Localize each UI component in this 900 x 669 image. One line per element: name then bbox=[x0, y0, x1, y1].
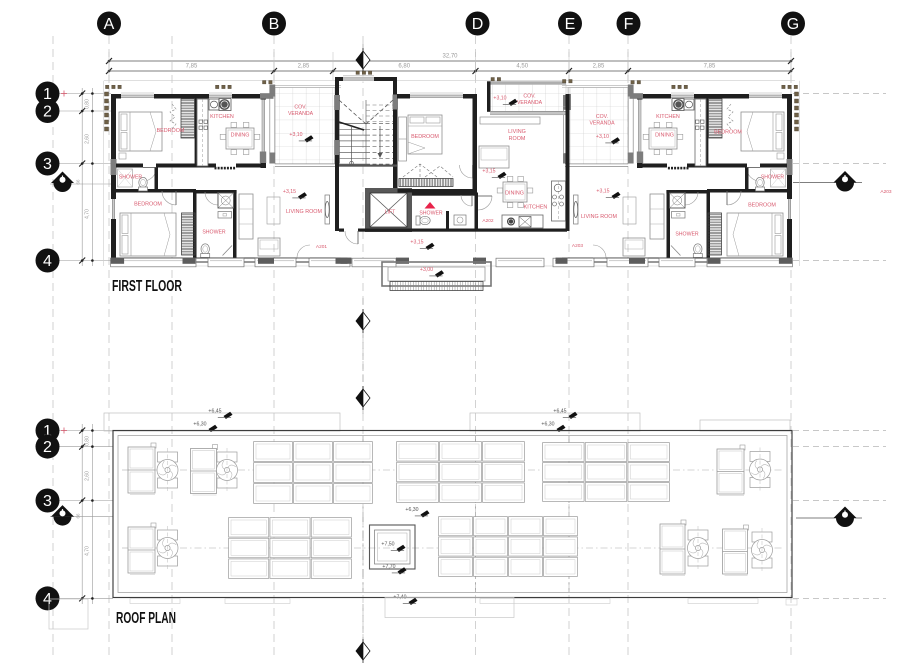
svg-text:+3,10: +3,10 bbox=[493, 96, 506, 102]
svg-text:VERANDA: VERANDA bbox=[288, 111, 314, 117]
svg-text:BEDROOM: BEDROOM bbox=[134, 202, 162, 208]
svg-text:A201: A201 bbox=[316, 244, 328, 250]
svg-text:A203: A203 bbox=[880, 189, 892, 195]
svg-text:G: G bbox=[787, 16, 799, 33]
svg-text:SHOWER: SHOWER bbox=[202, 230, 226, 236]
svg-text:2,85: 2,85 bbox=[298, 64, 310, 70]
svg-text:BEDROOM: BEDROOM bbox=[157, 128, 185, 134]
svg-text:4,70: 4,70 bbox=[84, 209, 90, 219]
svg-text:F: F bbox=[624, 16, 634, 33]
svg-text:+3,10: +3,10 bbox=[596, 134, 609, 140]
svg-text:66: 66 bbox=[75, 179, 80, 185]
svg-text:+6,30: +6,30 bbox=[193, 422, 206, 428]
svg-text:COV.: COV. bbox=[523, 94, 535, 100]
svg-text:SHOWER: SHOWER bbox=[419, 211, 443, 217]
svg-text:BEDROOM: BEDROOM bbox=[714, 130, 742, 136]
svg-text:0,80: 0,80 bbox=[84, 99, 90, 109]
svg-text:COV.: COV. bbox=[596, 114, 608, 120]
svg-text:DINING: DINING bbox=[655, 133, 674, 139]
svg-text:+3,10: +3,10 bbox=[289, 132, 302, 138]
svg-text:DINING: DINING bbox=[231, 133, 250, 139]
svg-text:SHOWER: SHOWER bbox=[675, 232, 699, 238]
svg-text:7,85: 7,85 bbox=[186, 64, 198, 70]
svg-text:4: 4 bbox=[43, 591, 52, 608]
svg-text:66: 66 bbox=[75, 513, 80, 519]
svg-text:A: A bbox=[104, 16, 115, 33]
svg-text:4,70: 4,70 bbox=[84, 546, 90, 556]
svg-text:+6,30: +6,30 bbox=[541, 422, 554, 428]
svg-text:0,80: 0,80 bbox=[84, 436, 90, 446]
svg-text:LIVING: LIVING bbox=[508, 129, 526, 135]
svg-text:LIVING ROOM: LIVING ROOM bbox=[286, 209, 322, 215]
svg-text:DINING: DINING bbox=[505, 191, 524, 197]
svg-text:7,85: 7,85 bbox=[704, 64, 716, 70]
svg-text:+3,00: +3,00 bbox=[420, 267, 433, 273]
svg-text:2,85: 2,85 bbox=[593, 64, 605, 70]
svg-text:+7,50: +7,50 bbox=[381, 542, 394, 548]
svg-text:ROOF PLAN: ROOF PLAN bbox=[116, 610, 176, 627]
svg-text:KITCHEN: KITCHEN bbox=[524, 205, 548, 211]
svg-text:B: B bbox=[269, 16, 280, 33]
svg-text:A203: A203 bbox=[572, 243, 584, 249]
svg-text:4,50: 4,50 bbox=[516, 64, 528, 70]
svg-text:2: 2 bbox=[43, 104, 52, 121]
svg-text:BEDROOM: BEDROOM bbox=[411, 134, 439, 140]
svg-text:VERANDA: VERANDA bbox=[517, 100, 543, 106]
svg-text:BEDROOM: BEDROOM bbox=[748, 203, 776, 209]
svg-text:A202: A202 bbox=[482, 218, 494, 224]
svg-text:32,70: 32,70 bbox=[442, 54, 458, 60]
svg-text:E: E bbox=[565, 16, 576, 33]
svg-text:KITCHEN: KITCHEN bbox=[210, 114, 234, 120]
svg-text:ROOM: ROOM bbox=[509, 136, 526, 142]
svg-text:VERANDA: VERANDA bbox=[589, 121, 615, 127]
svg-text:+6,45: +6,45 bbox=[208, 409, 221, 415]
svg-text:2,60: 2,60 bbox=[84, 471, 90, 481]
svg-text:SHOWER: SHOWER bbox=[119, 175, 143, 181]
svg-text:6,80: 6,80 bbox=[398, 64, 410, 70]
svg-text:D: D bbox=[472, 16, 484, 33]
svg-text:+6,30: +6,30 bbox=[405, 507, 418, 513]
svg-text:+6,45: +6,45 bbox=[553, 409, 566, 415]
svg-text:+3,15: +3,15 bbox=[482, 169, 495, 175]
svg-text:SHOWER: SHOWER bbox=[761, 175, 785, 181]
svg-text:+3,15: +3,15 bbox=[283, 189, 296, 195]
svg-text:3: 3 bbox=[43, 156, 52, 173]
svg-text:COV.: COV. bbox=[294, 105, 306, 111]
svg-text:LIFT: LIFT bbox=[385, 210, 396, 216]
svg-text:+3,15: +3,15 bbox=[410, 240, 423, 246]
svg-text:KITCHEN: KITCHEN bbox=[656, 114, 680, 120]
svg-text:4: 4 bbox=[43, 253, 52, 270]
svg-text:+7,70: +7,70 bbox=[382, 564, 395, 570]
svg-text:3: 3 bbox=[43, 493, 52, 510]
svg-text:2,60: 2,60 bbox=[84, 134, 90, 144]
svg-text:FIRST FLOOR: FIRST FLOOR bbox=[112, 278, 182, 295]
svg-text:2: 2 bbox=[43, 439, 52, 456]
svg-text:+3,15: +3,15 bbox=[596, 189, 609, 195]
svg-text:LIVING ROOM: LIVING ROOM bbox=[581, 214, 617, 220]
